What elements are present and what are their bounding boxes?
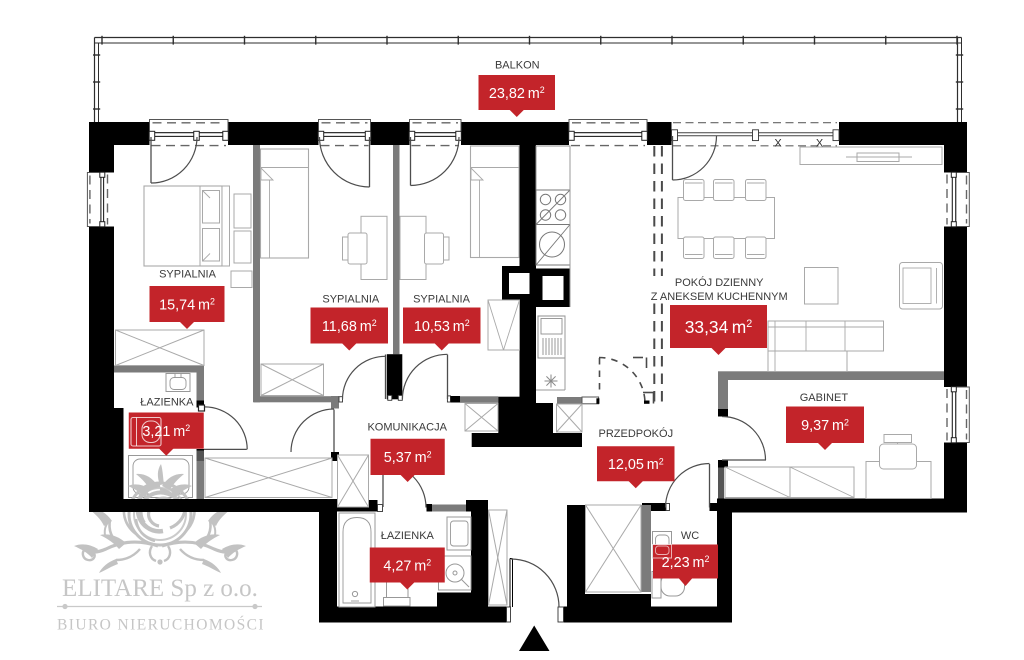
svg-text:GABINET: GABINET xyxy=(800,392,849,404)
svg-text:5,37 m2: 5,37 m2 xyxy=(384,449,432,466)
svg-text:ŁAZIENKA: ŁAZIENKA xyxy=(140,397,194,409)
svg-text:KOMUNIKACJA: KOMUNIKACJA xyxy=(367,422,447,434)
svg-text:SYPIALNIA: SYPIALNIA xyxy=(413,293,471,305)
svg-text:Z ANEKSEM KUCHENNYM: Z ANEKSEM KUCHENNYM xyxy=(651,291,788,303)
svg-text:ELITARE Sp z o.o.: ELITARE Sp z o.o. xyxy=(62,575,258,602)
svg-text:POKÓJ DZIENNY: POKÓJ DZIENNY xyxy=(675,276,764,289)
svg-text:10,53 m2: 10,53 m2 xyxy=(414,318,470,335)
svg-text:PRZEDPOKÓJ: PRZEDPOKÓJ xyxy=(599,427,674,440)
svg-text:ŁAZIENKA: ŁAZIENKA xyxy=(381,530,435,542)
svg-text:2,23 m2: 2,23 m2 xyxy=(662,554,710,571)
svg-text:X: X xyxy=(774,138,782,150)
svg-text:3,21 m2: 3,21 m2 xyxy=(142,423,190,440)
svg-text:WC: WC xyxy=(681,530,699,542)
svg-text:11,68 m2: 11,68 m2 xyxy=(322,318,377,335)
svg-text:BALKON: BALKON xyxy=(495,60,540,72)
svg-text:12,05 m2: 12,05 m2 xyxy=(608,456,664,473)
svg-text:23,82 m2: 23,82 m2 xyxy=(489,85,545,102)
svg-text:4,27 m2: 4,27 m2 xyxy=(383,558,431,575)
svg-text:33,34 m2: 33,34 m2 xyxy=(685,317,753,337)
svg-text:SYPIALNIA: SYPIALNIA xyxy=(159,269,217,281)
svg-text:BIURO NIERUCHOMOŚCI: BIURO NIERUCHOMOŚCI xyxy=(57,617,265,634)
svg-text:SYPIALNIA: SYPIALNIA xyxy=(322,293,380,305)
svg-text:15,74 m2: 15,74 m2 xyxy=(159,297,215,314)
svg-text:9,37 m2: 9,37 m2 xyxy=(801,417,849,434)
